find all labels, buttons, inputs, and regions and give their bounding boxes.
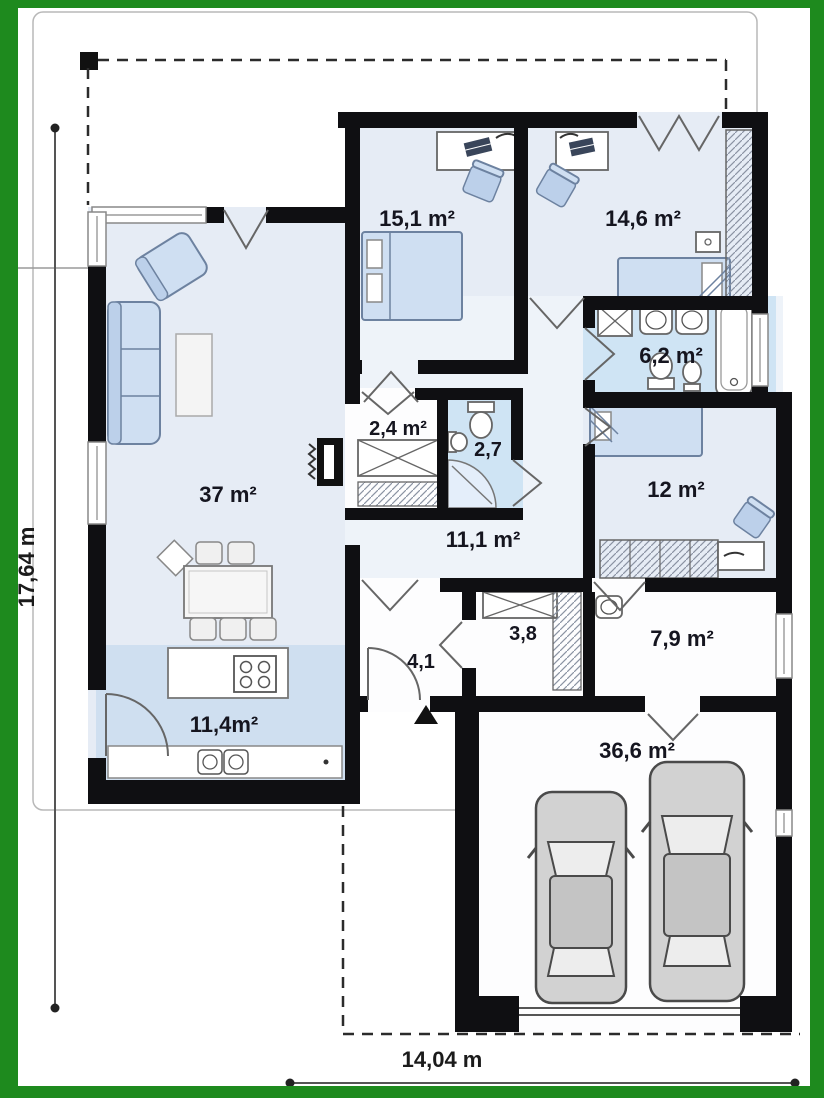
room-label-wc: 2,7 (474, 439, 502, 461)
washing-machine (598, 306, 632, 336)
room-label-hallway: 11,1 m² (446, 527, 521, 552)
closet-shelf (600, 540, 718, 578)
window (88, 212, 106, 266)
room-label-living-room: 37 m² (199, 482, 256, 507)
desk (718, 542, 764, 570)
entry-fill (345, 578, 476, 712)
wardrobe (358, 440, 438, 506)
room-label-bathroom: 6,2 m² (639, 343, 703, 368)
sink-icon (448, 432, 467, 452)
car (528, 792, 634, 1003)
bed (618, 258, 730, 302)
wardrobe (726, 130, 754, 298)
bed (362, 232, 462, 320)
stove-icon (234, 656, 276, 692)
car (642, 762, 752, 1001)
room-label-bedroom-2: 14,6 m² (605, 206, 681, 231)
kitchen-counter (108, 746, 342, 778)
room-label-utility: 7,9 m² (650, 626, 714, 651)
dimension-label-width: 14,04 m (402, 1047, 483, 1072)
room-label-kitchen: 11,4m² (190, 712, 259, 737)
room-label-bedroom-1: 15,1 m² (379, 206, 455, 231)
nightstand (696, 232, 720, 252)
desk (556, 132, 608, 170)
toilet (468, 402, 494, 438)
window (776, 810, 792, 836)
bathtub (716, 300, 752, 396)
window (92, 207, 206, 223)
sofa (108, 302, 160, 444)
floor-plan-svg: 15,1 m² 14,6 m² 6,2 m² 2,4 m² 2,7 37 m² … (0, 0, 824, 1098)
window (776, 614, 792, 678)
room-label-garage: 36,6 m² (599, 738, 675, 763)
rug (176, 334, 212, 416)
window (752, 314, 768, 386)
kitchen-island (168, 648, 288, 698)
bed (590, 406, 702, 456)
room-label-entry: 4,1 (407, 651, 435, 673)
floor-plan-page: 15,1 m² 14,6 m² 6,2 m² 2,4 m² 2,7 37 m² … (0, 0, 824, 1098)
room-label-hall-closet: 3,8 (509, 623, 537, 645)
room-label-bedroom-3: 12 m² (647, 477, 704, 502)
room-label-closet: 2,4 m² (369, 418, 427, 440)
window (88, 442, 106, 524)
